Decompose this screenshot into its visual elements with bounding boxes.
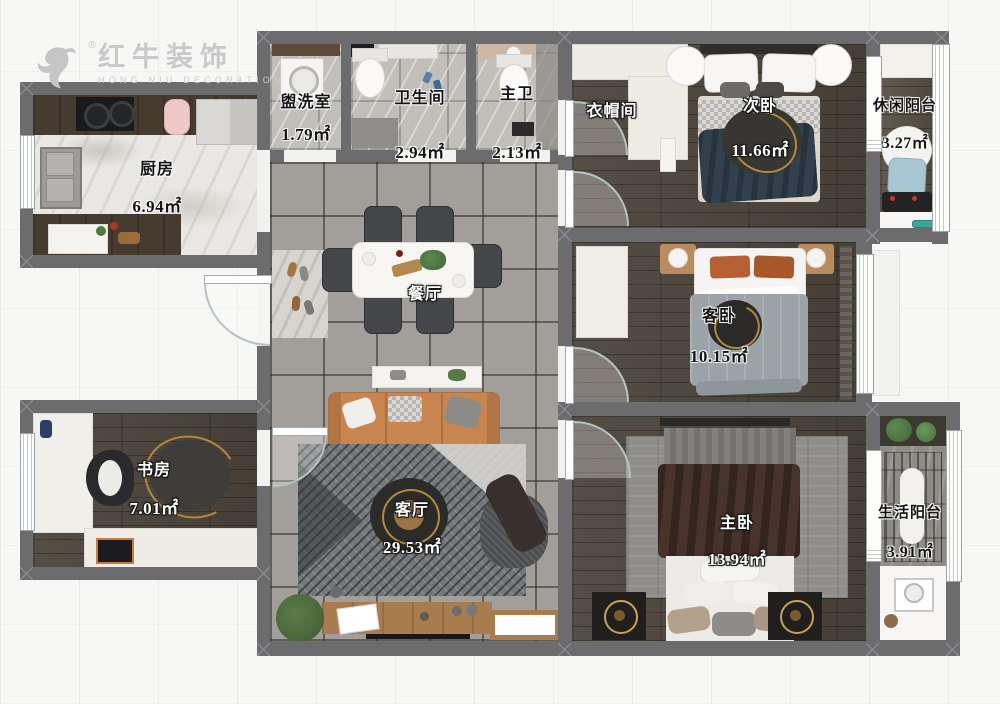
rice-cooker (164, 99, 190, 135)
table-plant (420, 250, 446, 270)
toilet-bowl (355, 58, 385, 98)
room-name: 客卧 (690, 302, 748, 326)
kitchen-passage (257, 150, 270, 232)
vegetables (110, 222, 118, 230)
room-area: 7.01㎡ (129, 494, 178, 519)
wall-corner-mark (946, 643, 959, 656)
room-name: 盥洗室 (280, 88, 331, 112)
kitchen-window (20, 135, 35, 209)
bath-mat (352, 118, 398, 148)
wall-corner-mark (257, 400, 270, 413)
room-label-master-bath: 主卫 2.13㎡ (492, 80, 541, 163)
brand-name: 红牛装饰 (98, 42, 285, 72)
wall (20, 567, 270, 580)
guest-bedroom-window (856, 254, 874, 394)
table-lamp (806, 248, 826, 268)
wall-corner-mark (558, 403, 571, 416)
nightstand-round (666, 46, 706, 86)
magazine (336, 603, 379, 634)
wall-corner-mark (257, 567, 270, 580)
speaker-dot (614, 610, 625, 621)
room-area: 1.79㎡ (280, 120, 331, 145)
wall (572, 228, 948, 242)
master-door-leaf (565, 420, 574, 480)
bull-icon: ® (36, 42, 88, 97)
room-area: 2.13㎡ (492, 138, 541, 163)
wall-corner-mark (20, 82, 33, 95)
cloakroom-door-leaf (565, 170, 574, 228)
floor-plant (276, 594, 324, 642)
nightstand-round (810, 44, 852, 86)
room-area: 3.27㎡ (873, 129, 937, 153)
wall-corner-mark (866, 643, 879, 656)
sideboard-plant (448, 369, 466, 381)
wall (932, 230, 948, 244)
cloakroom-door-leaf (565, 100, 574, 157)
wall (558, 155, 572, 170)
room-label-laundry: 盥洗室 1.79㎡ (280, 88, 331, 145)
room-name: 休闲阳台 (873, 94, 937, 115)
sideboard-decor (390, 370, 406, 380)
wardrobe (576, 246, 628, 338)
wall (257, 346, 270, 430)
leaning-frame (490, 610, 560, 640)
wall-corner-mark (866, 229, 879, 242)
wall (550, 150, 558, 162)
sink-basin (46, 178, 74, 202)
plate (362, 252, 376, 266)
burner-icon (84, 103, 110, 129)
room-area: 10.15㎡ (690, 342, 748, 367)
entry-mat (272, 250, 328, 338)
entry-door-leaf (204, 275, 272, 284)
wall (270, 150, 284, 162)
wall (257, 232, 270, 278)
room-area: 3.91㎡ (878, 538, 942, 562)
room-name: 主卧 (708, 509, 766, 533)
plant (916, 422, 936, 442)
registered-mark: ® (89, 40, 96, 51)
side-stool (330, 586, 342, 598)
console-vase (466, 604, 478, 616)
study-window (20, 433, 35, 531)
wall (341, 44, 351, 150)
bed-bench (664, 428, 796, 466)
entry-door-arc (204, 282, 270, 346)
room-label-kitchen: 厨房 6.94㎡ (132, 155, 181, 217)
brand-subtitle: HONG NIU DECORATION (98, 75, 285, 85)
table-lamp (668, 248, 688, 268)
wall-corner-mark (558, 643, 571, 656)
room-area: 6.94㎡ (132, 192, 181, 217)
room-label-second-bedroom: 次卧 11.66㎡ (731, 92, 788, 161)
desk-chair (887, 157, 927, 197)
room-name: 生活阳台 (878, 501, 942, 522)
sofa-pillow (388, 396, 422, 422)
wall-corner-mark (257, 643, 270, 656)
slim-cabinet (660, 138, 676, 172)
burner-icon (109, 101, 135, 127)
chair-cushion (98, 460, 122, 496)
pillow (712, 612, 756, 636)
wall-corner-mark (20, 567, 33, 580)
room-name: 客厅 (383, 496, 441, 520)
room-label-master-bedroom: 主卧 13.94㎡ (708, 509, 766, 570)
balcony-cabinet (880, 44, 934, 78)
vegetables (96, 226, 106, 236)
wall-corner-mark (558, 31, 571, 44)
wall (336, 150, 398, 162)
room-label-bathroom: 卫生间 2.94㎡ (394, 84, 445, 163)
guest-window-sill (872, 250, 900, 396)
guest-door-leaf (565, 346, 574, 404)
room-area: 13.94㎡ (708, 545, 766, 570)
study-door-leaf (272, 427, 328, 436)
sink-basin (46, 152, 74, 176)
wall (257, 641, 960, 656)
wall-corner-mark (20, 255, 33, 268)
tv-wall-strip (660, 418, 790, 426)
curtain (840, 246, 852, 400)
room-name: 卫生间 (394, 84, 445, 108)
room-name: 衣帽间 (586, 97, 637, 121)
wall (558, 226, 572, 346)
desk-lamp (890, 196, 895, 201)
room-name: 书房 (129, 456, 178, 480)
wall (20, 400, 270, 413)
washer-door (904, 583, 924, 603)
room-label-guest-bedroom: 客卧 10.15㎡ (690, 302, 748, 367)
room-label-living: 客厅 29.53㎡ (383, 496, 441, 558)
tv-screen (366, 634, 470, 639)
desk (882, 192, 932, 212)
room-name: 主卫 (492, 80, 541, 104)
wall (558, 478, 572, 656)
plate (452, 274, 466, 288)
bread-basket (118, 232, 140, 244)
headboard (700, 44, 818, 54)
orange-pillow (754, 255, 795, 278)
wall (572, 402, 866, 416)
room-name: 次卧 (731, 92, 788, 116)
room-label-life-balcony: 生活阳台 3.91㎡ (878, 501, 942, 562)
wall-corner-mark (20, 400, 33, 413)
wall-corner-mark (558, 228, 571, 241)
dumbbell (912, 220, 934, 228)
wall (466, 44, 476, 150)
wine-bottle (396, 250, 403, 257)
fridge (196, 99, 258, 145)
room-name: 餐厅 (408, 280, 442, 304)
study-door-opening (257, 430, 270, 486)
desk-item (912, 196, 917, 201)
wall-corner-mark (866, 403, 879, 416)
console-vase (452, 606, 462, 616)
room-label-leisure-balcony: 休闲阳台 3.27㎡ (873, 94, 937, 153)
room-label-study: 书房 7.01㎡ (129, 456, 178, 519)
wall (20, 255, 270, 268)
life-balcony-window (946, 430, 962, 582)
desk-lamp (40, 420, 52, 438)
brand-logo: ® 红牛装饰 HONG NIU DECORATION (36, 42, 285, 97)
orange-pillow (710, 255, 751, 278)
speaker-dot (790, 610, 801, 621)
basin (884, 614, 898, 628)
laundry-door-opening (284, 150, 336, 162)
room-label-dining: 餐厅 (408, 280, 442, 304)
room-area: 2.94㎡ (394, 138, 445, 163)
room-area: 29.53㎡ (383, 533, 441, 558)
room-label-cloakroom: 衣帽间 (586, 97, 637, 121)
room-name: 厨房 (132, 155, 181, 179)
wall-corner-mark (866, 31, 879, 44)
wall (946, 402, 960, 430)
console-knob (420, 612, 429, 621)
wall (257, 31, 949, 44)
plant (886, 418, 912, 442)
wall-corner-mark (935, 31, 948, 44)
room-area: 11.66㎡ (731, 136, 788, 161)
printer (96, 538, 134, 564)
